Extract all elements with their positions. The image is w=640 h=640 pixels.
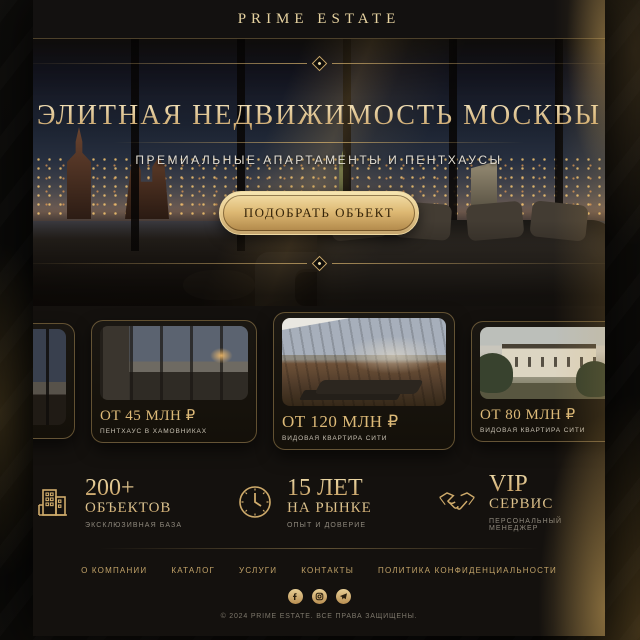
header: PRIME ESTATE bbox=[33, 0, 605, 39]
building-icon bbox=[33, 482, 73, 522]
social-icons bbox=[33, 589, 605, 604]
stat-vip: VIP СЕРВИС ПЕРСОНАЛЬНЫЙ МЕНЕДЖЕР bbox=[437, 472, 605, 532]
clock-icon bbox=[235, 482, 275, 522]
listing-label: ВИДОВАЯ КВАРТИРА СИТИ bbox=[480, 427, 605, 434]
listing-photo bbox=[33, 329, 66, 425]
listing-card-featured[interactable]: ОТ 120 МЛН ₽ ВИДОВАЯ КВАРТИРА СИТИ bbox=[273, 312, 455, 450]
page-title: ЭЛИТНАЯ НЕДВИЖИМОСТЬ МОСКВЫ bbox=[33, 100, 605, 132]
footer-link-catalog[interactable]: КАТАЛОГ bbox=[171, 566, 215, 575]
listing-photo bbox=[282, 318, 446, 406]
stat-title: НА РЫНКЕ bbox=[287, 500, 372, 517]
copyright: © 2024 PRIME ESTATE. ВСЕ ПРАВА ЗАЩИЩЕНЫ. bbox=[33, 613, 605, 620]
stat-title: СЕРВИС bbox=[489, 496, 605, 513]
stat-value: 200+ bbox=[85, 476, 182, 500]
page-subtitle: ПРЕМИАЛЬНЫЕ АПАРТАМЕНТЫ И ПЕНТХАУСЫ bbox=[33, 153, 605, 167]
listing-photo bbox=[100, 326, 248, 400]
footer-nav: О КОМПАНИИ КАТАЛОГ УСЛУГИ КОНТАКТЫ ПОЛИТ… bbox=[33, 566, 605, 575]
listing-label: ВИДОВАЯ КВАРТИРА СИТИ bbox=[282, 435, 446, 442]
listing-price: ОТ 45 МЛН ₽ bbox=[100, 406, 248, 425]
diamond-icon bbox=[311, 256, 327, 272]
footer-link-services[interactable]: УСЛУГИ bbox=[239, 566, 277, 575]
title-underline bbox=[114, 142, 524, 143]
stat-value: VIP bbox=[489, 472, 605, 496]
listing-card[interactable]: ОТ 45 МЛН ₽ ПЕНТХАУС В ХАМОВНИКАХ bbox=[91, 320, 257, 443]
facebook-icon[interactable] bbox=[288, 589, 303, 604]
footer-link-about[interactable]: О КОМПАНИИ bbox=[81, 566, 147, 575]
diamond-icon bbox=[311, 56, 327, 72]
stat-objects: 200+ ОБЪЕКТОВ ЭКСКЛЮЗИВНАЯ БАЗА bbox=[33, 472, 201, 532]
stat-value: 15 ЛЕТ bbox=[287, 476, 372, 500]
listing-photo bbox=[480, 327, 605, 399]
listing-label: ПЕНТХАУС В ХАМОВНИКАХ bbox=[100, 428, 248, 435]
listings-carousel: ОТ 45 МЛН ₽ ПЕНТХАУС В ХАМОВНИКАХ ОТ 120… bbox=[33, 306, 605, 456]
listing-price: ОТ 80 МЛН ₽ bbox=[480, 405, 605, 424]
listing-card-partial-left[interactable] bbox=[33, 323, 75, 439]
listing-card[interactable]: ОТ 80 МЛН ₽ ВИДОВАЯ КВАРТИРА СИТИ bbox=[471, 321, 605, 442]
stat-caption: ПЕРСОНАЛЬНЫЙ МЕНЕДЖЕР bbox=[489, 518, 605, 532]
ornament-divider-bottom bbox=[33, 258, 605, 269]
select-property-button[interactable]: ПОДОБРАТЬ ОБЪЕКТ bbox=[219, 191, 419, 235]
footer-link-privacy[interactable]: ПОЛИТИКА КОНФИДЕНЦИАЛЬНОСТИ bbox=[378, 566, 557, 575]
stats-row: 200+ ОБЪЕКТОВ ЭКСКЛЮЗИВНАЯ БАЗА 15 ЛЕТ Н… bbox=[33, 472, 605, 532]
stat-years: 15 ЛЕТ НА РЫНКЕ ОПЫТ И ДОВЕРИЕ bbox=[235, 472, 403, 532]
stat-caption: ЭКСКЛЮЗИВНАЯ БАЗА bbox=[85, 522, 182, 529]
footer-divider bbox=[99, 548, 539, 549]
landing-page: PRIME ESTATE ЭЛИТНАЯ НЕДВИЖИМОСТЬ МОСКВЫ… bbox=[33, 0, 605, 636]
ornament-divider-top bbox=[33, 58, 605, 69]
telegram-icon[interactable] bbox=[336, 589, 351, 604]
brand-logo: PRIME ESTATE bbox=[238, 11, 401, 28]
hero-section: ЭЛИТНАЯ НЕДВИЖИМОСТЬ МОСКВЫ ПРЕМИАЛЬНЫЕ … bbox=[33, 39, 605, 306]
footer-link-contacts[interactable]: КОНТАКТЫ bbox=[301, 566, 354, 575]
handshake-icon bbox=[437, 482, 477, 522]
listing-price: ОТ 120 МЛН ₽ bbox=[282, 412, 446, 432]
stat-caption: ОПЫТ И ДОВЕРИЕ bbox=[287, 522, 372, 529]
instagram-icon[interactable] bbox=[312, 589, 327, 604]
stat-title: ОБЪЕКТОВ bbox=[85, 500, 182, 517]
